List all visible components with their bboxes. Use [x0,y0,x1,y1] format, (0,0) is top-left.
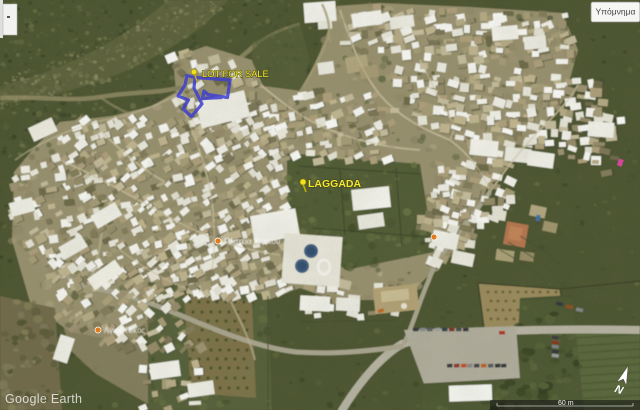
svg-text:Υπόμνημα: Υπόμνημα [596,7,636,17]
svg-text:Πλατεία Χωριού: Πλατεία Χωριού [224,237,280,246]
svg-text:LAGGADA: LAGGADA [308,178,361,190]
svg-text:LOT FOR SALE: LOT FOR SALE [202,69,269,80]
svg-text:60 m: 60 m [558,400,574,407]
svg-text:Αγιος Νικος: Αγιος Νικος [104,326,145,335]
svg-text:Google Earth: Google Earth [5,392,82,406]
